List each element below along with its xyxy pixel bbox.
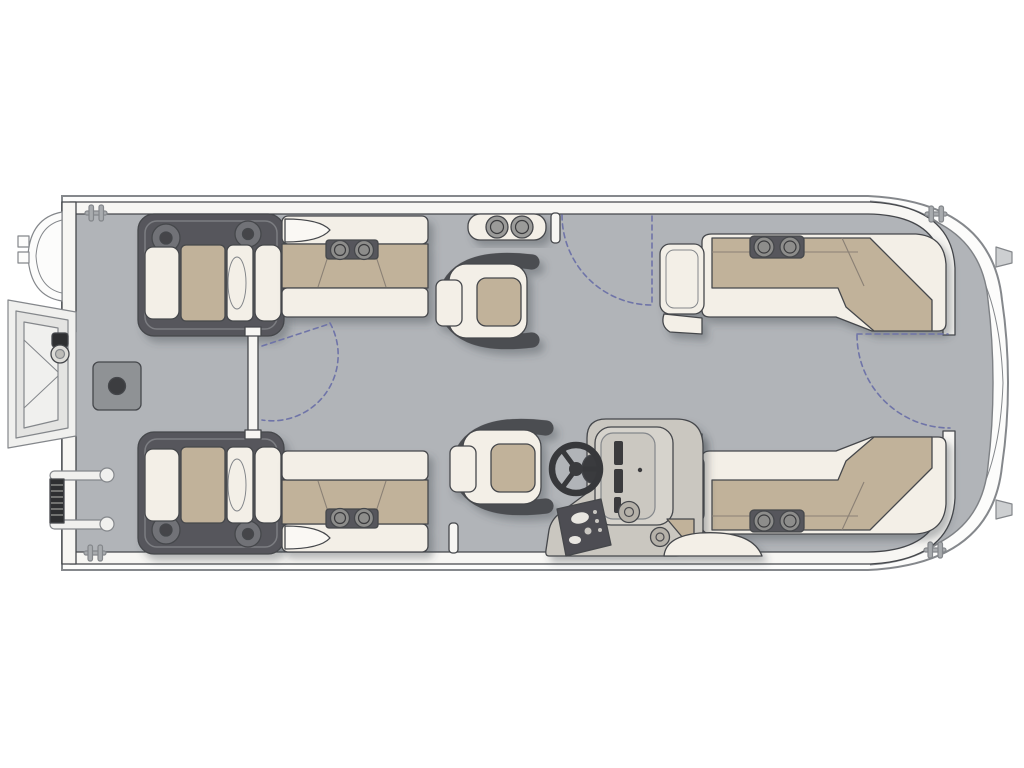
pontoon-floor-plan [0,0,1024,768]
gate-post-starboard [449,523,458,553]
transom-bracket-bottom [996,500,1012,519]
switch-panel [557,499,611,556]
starboard-bench-seat [282,451,428,552]
pedestal-mount [93,362,141,410]
bow-recliner-chair [436,260,532,341]
starboard-chaise-lounge [138,432,284,554]
helm-chair [450,426,546,507]
bow-boarding-ladder [8,300,76,448]
port-bench-seat [282,216,428,317]
transom-bracket-top [996,247,1012,267]
floor-plan-canvas [0,0,1024,768]
cup-holder-console [468,214,546,240]
port-chaise-lounge [138,214,284,336]
bow-nose [18,212,62,301]
gate-post-port [551,213,560,243]
